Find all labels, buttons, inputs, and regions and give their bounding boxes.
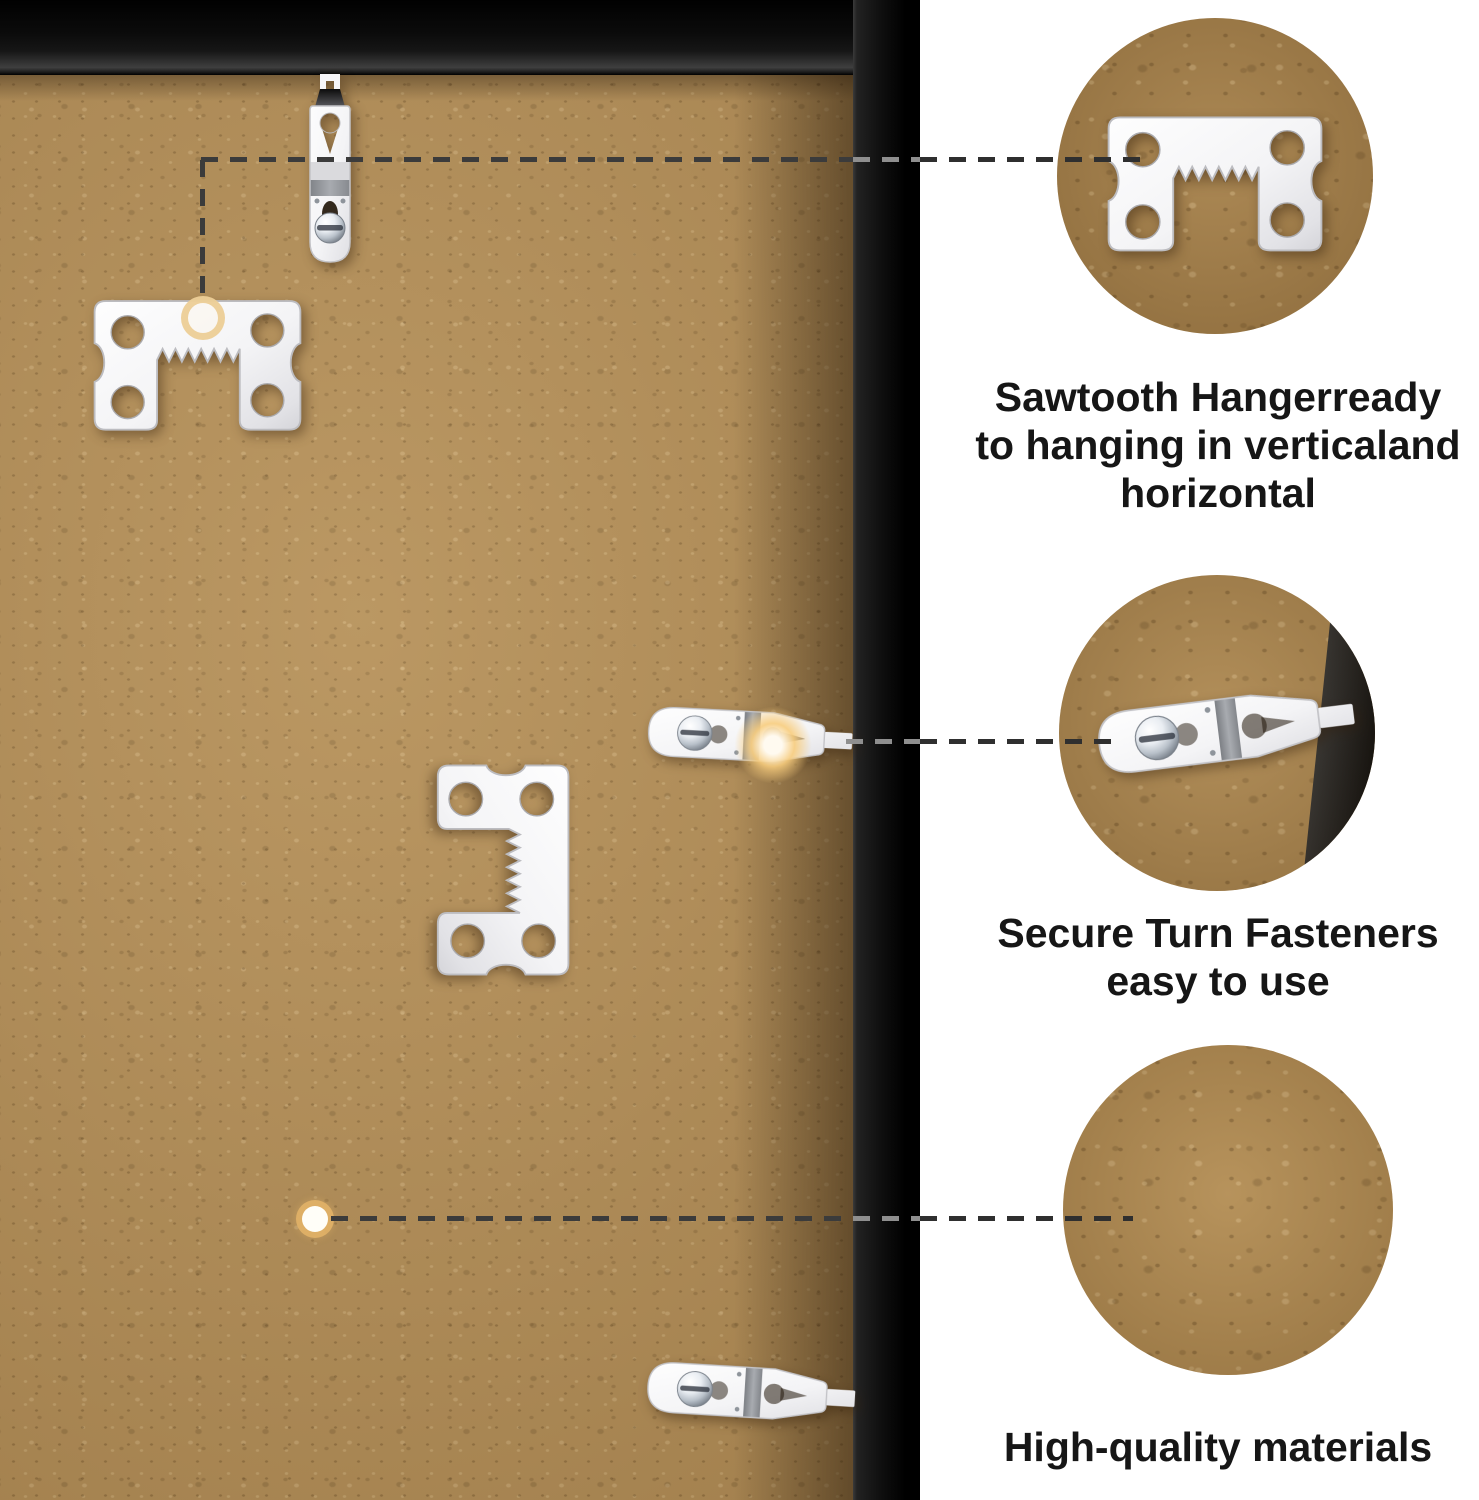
frame-right-rail — [853, 0, 920, 1500]
nail-point-marker — [181, 296, 225, 340]
sawtooth-hanger-zoom-icon — [1099, 106, 1331, 258]
callout-circle-sawtooth — [1057, 18, 1373, 334]
leader-line-3 — [331, 1216, 853, 1221]
leader-line-3-over-frame — [853, 1216, 920, 1221]
caption-line: Sawtooth Hangerready — [953, 373, 1479, 421]
callout-circle-material — [1063, 1045, 1393, 1375]
frame-top-rail — [0, 0, 920, 75]
leader-line-3-right — [920, 1216, 1133, 1221]
caption-line: easy to use — [953, 957, 1479, 1005]
highlight-glow — [733, 705, 813, 785]
product-annotation-image: Sawtooth Hangerready to hanging in verti… — [0, 0, 1479, 1500]
caption-material: High-quality materials — [953, 1423, 1479, 1471]
caption-line: to hanging in verticaland — [953, 421, 1479, 469]
hanging-hole-marker — [302, 1206, 328, 1232]
caption-fastener: Secure Turn Fasteners easy to use — [953, 909, 1479, 1005]
leader-line-2-over-frame — [846, 739, 920, 744]
leader-line-2 — [920, 739, 1120, 744]
leader-line-1-vertical — [200, 160, 205, 300]
vertical-hanging-clip-icon — [305, 74, 355, 286]
sawtooth-hanger-vertical-icon — [428, 758, 582, 982]
leader-line-1-right — [920, 157, 1151, 162]
leader-line-1-over-frame — [853, 157, 920, 162]
caption-line: horizontal — [953, 469, 1479, 517]
callout-circle-fastener — [1059, 575, 1375, 891]
caption-line: High-quality materials — [953, 1423, 1479, 1471]
caption-line: Secure Turn Fasteners — [953, 909, 1479, 957]
leader-line-1 — [201, 157, 853, 162]
callout-shade — [1063, 1045, 1393, 1375]
caption-sawtooth: Sawtooth Hangerready to hanging in verti… — [953, 373, 1479, 517]
backboard-shading — [0, 73, 853, 1500]
